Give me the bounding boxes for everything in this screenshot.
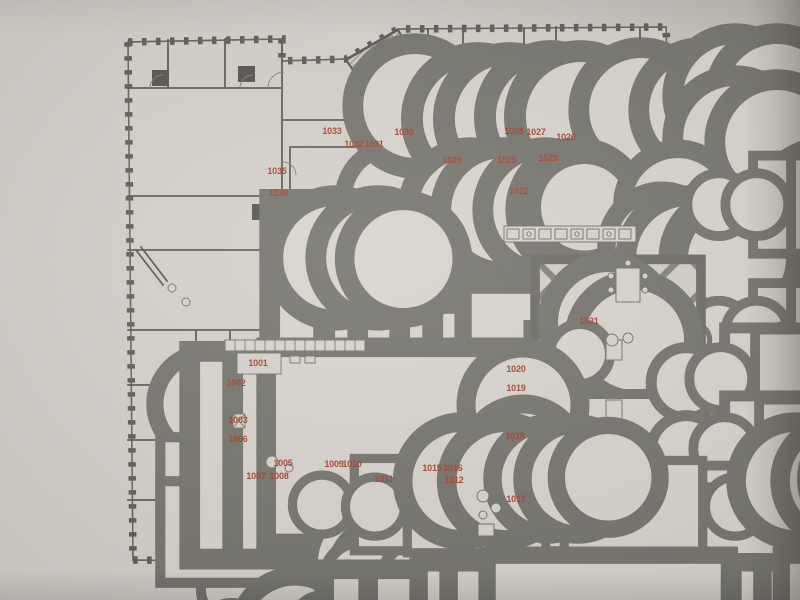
room-label-1012: 1012 bbox=[444, 475, 463, 485]
floor-plan: 1033103010281027102610321031102910251023… bbox=[0, 0, 800, 600]
room-label-1035: 1035 bbox=[267, 166, 286, 176]
room-label-1002: 1002 bbox=[226, 378, 245, 388]
room-label-1010: 1010 bbox=[342, 459, 361, 469]
photo-background: 1033103010281027102610321031102910251023… bbox=[0, 0, 800, 600]
room-label-1028: 1028 bbox=[504, 126, 523, 136]
room-label-1032: 1032 bbox=[344, 139, 363, 149]
pantry-counter bbox=[504, 226, 636, 242]
room-label-1015: 1015 bbox=[422, 463, 441, 473]
room-label-1018: 1018 bbox=[505, 431, 524, 441]
room-label-1007: 1007 bbox=[246, 471, 265, 481]
room-label-1019: 1019 bbox=[506, 383, 525, 393]
room-label-1003: 1003 bbox=[228, 415, 247, 425]
room-label-1011: 1011 bbox=[375, 474, 394, 484]
room-label-1001: 1001 bbox=[248, 358, 267, 368]
room-label-1029: 1029 bbox=[442, 155, 461, 165]
room-label-1017: 1017 bbox=[506, 494, 525, 504]
room-label-1025: 1025 bbox=[497, 155, 516, 165]
room-label-1026: 1026 bbox=[556, 132, 575, 142]
room-label-1006: 1006 bbox=[228, 434, 247, 444]
room-label-1021: 1021 bbox=[579, 316, 598, 326]
room-label-1033: 1033 bbox=[322, 126, 341, 136]
room-label-1023: 1023 bbox=[538, 153, 557, 163]
room-label-1036: 1036 bbox=[268, 188, 287, 198]
room-label-1030: 1030 bbox=[394, 127, 413, 137]
room-label-1022: 1022 bbox=[509, 186, 528, 196]
room-label-1009: 1009 bbox=[324, 459, 343, 469]
room-label-1020: 1020 bbox=[506, 364, 525, 374]
room-label-1031: 1031 bbox=[364, 139, 383, 149]
room-label-1008: 1008 bbox=[269, 471, 288, 481]
room-label-1016: 1016 bbox=[443, 463, 462, 473]
room-label-1027: 1027 bbox=[526, 127, 545, 137]
room-label-1005: 1005 bbox=[273, 458, 292, 468]
